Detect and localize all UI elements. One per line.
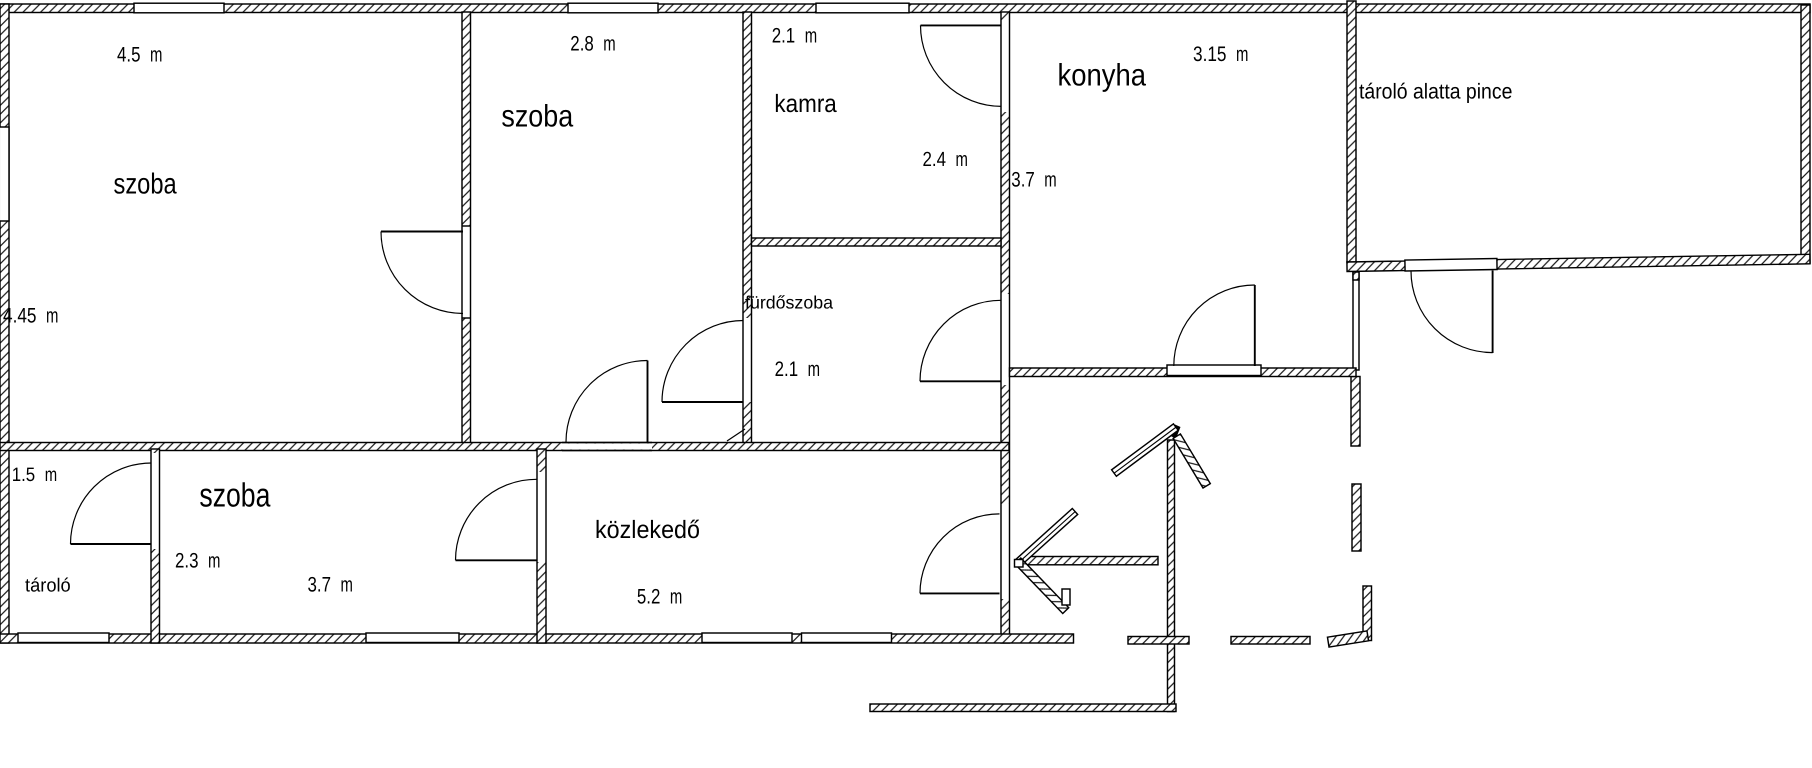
svg-text:m: m: [808, 358, 820, 381]
svg-text:tároló: tároló: [25, 575, 71, 596]
svg-text:szoba: szoba: [199, 477, 270, 514]
svg-text:1.5: 1.5: [12, 464, 36, 486]
svg-text:2.4: 2.4: [923, 148, 947, 171]
svg-text:m: m: [805, 25, 817, 48]
svg-text:m: m: [150, 44, 162, 67]
svg-text:m: m: [956, 148, 968, 171]
svg-text:m: m: [603, 33, 615, 56]
svg-text:tároló alatta pince: tároló alatta pince: [1359, 80, 1512, 104]
svg-text:m: m: [1236, 43, 1248, 66]
svg-text:3.7: 3.7: [1011, 169, 1035, 192]
svg-text:4.5: 4.5: [117, 44, 141, 67]
svg-text:2.1: 2.1: [775, 358, 799, 381]
svg-text:m: m: [341, 573, 353, 596]
svg-text:m: m: [46, 305, 58, 328]
svg-text:kamra: kamra: [774, 90, 836, 118]
svg-text:3.15: 3.15: [1193, 43, 1227, 66]
svg-text:m: m: [670, 586, 682, 609]
svg-text:szoba: szoba: [114, 169, 178, 201]
svg-text:közlekedő: közlekedő: [595, 516, 700, 544]
svg-text:m: m: [1044, 169, 1056, 192]
svg-text:m: m: [45, 464, 57, 486]
svg-text:szoba: szoba: [501, 99, 573, 134]
svg-text:fürdőszoba: fürdőszoba: [745, 292, 834, 312]
svg-text:konyha: konyha: [1058, 58, 1147, 93]
svg-text:2.8: 2.8: [570, 33, 594, 56]
svg-text:m: m: [208, 550, 220, 573]
svg-text:2.3: 2.3: [175, 550, 199, 573]
svg-text:4.45: 4.45: [3, 305, 37, 328]
svg-text:2.1: 2.1: [772, 25, 796, 48]
svg-text:3.7: 3.7: [308, 573, 332, 596]
svg-text:5.2: 5.2: [637, 586, 661, 609]
